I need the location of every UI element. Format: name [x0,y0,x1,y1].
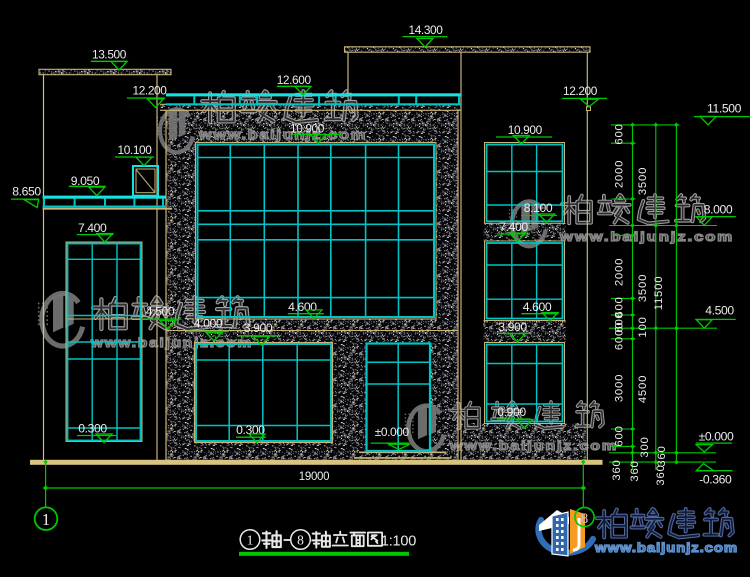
svg-text:7.400: 7.400 [499,220,528,234]
svg-text:4500: 4500 [637,375,649,403]
svg-text:3.900: 3.900 [498,320,527,334]
svg-text:4.500: 4.500 [146,305,175,319]
svg-text:11.500: 11.500 [707,102,742,116]
svg-text:360: 360 [629,460,641,481]
svg-text:-0.360: -0.360 [699,472,732,486]
svg-text:www.baijunjz.com: www.baijunjz.com [594,541,738,555]
svg-text:2000: 2000 [614,160,626,188]
svg-text:10.100: 10.100 [118,143,153,157]
svg-text:1:100: 1:100 [381,534,416,550]
svg-text:3000: 3000 [614,374,626,402]
svg-text:12.200: 12.200 [133,84,168,98]
svg-text:8.000: 8.000 [704,203,733,217]
svg-text:19000: 19000 [299,471,329,483]
svg-text:12.600: 12.600 [277,73,312,87]
svg-text:1: 1 [247,532,254,547]
svg-text:4.600: 4.600 [288,300,317,314]
svg-text:100: 100 [637,316,649,337]
svg-text:360: 360 [656,445,668,466]
svg-text:600: 600 [614,425,626,446]
svg-text:3.900: 3.900 [244,321,273,335]
svg-text:1: 1 [42,510,51,529]
svg-text:13.500: 13.500 [92,48,127,62]
svg-text:8.100: 8.100 [524,201,553,215]
svg-text:4.500: 4.500 [705,304,734,318]
svg-text:10.900: 10.900 [290,122,325,136]
svg-text:14.300: 14.300 [409,23,444,37]
svg-text:4.000: 4.000 [194,317,223,331]
svg-text:www.baijunjz.com: www.baijunjz.com [198,127,367,142]
svg-text:360: 360 [655,464,667,485]
svg-text:±0.000: ±0.000 [375,425,410,439]
svg-text:600: 600 [614,123,626,144]
svg-text:0.900: 0.900 [497,405,526,419]
svg-text:8.650: 8.650 [12,184,41,198]
svg-text:3500: 3500 [637,274,649,302]
svg-text:www.baijunjz.com: www.baijunjz.com [449,438,618,453]
svg-text:2000: 2000 [614,258,626,286]
svg-text:8: 8 [581,511,589,527]
svg-text:12.200: 12.200 [563,84,598,98]
svg-text:8: 8 [297,532,304,547]
svg-text:11500: 11500 [653,276,665,311]
svg-text:3500: 3500 [637,167,649,195]
svg-text:±0.000: ±0.000 [699,430,734,444]
svg-text:360: 360 [611,459,623,480]
svg-text:www.baijunjz.com: www.baijunjz.com [559,229,734,244]
svg-text:6000: 6000 [614,322,626,350]
svg-text:300: 300 [639,436,651,457]
